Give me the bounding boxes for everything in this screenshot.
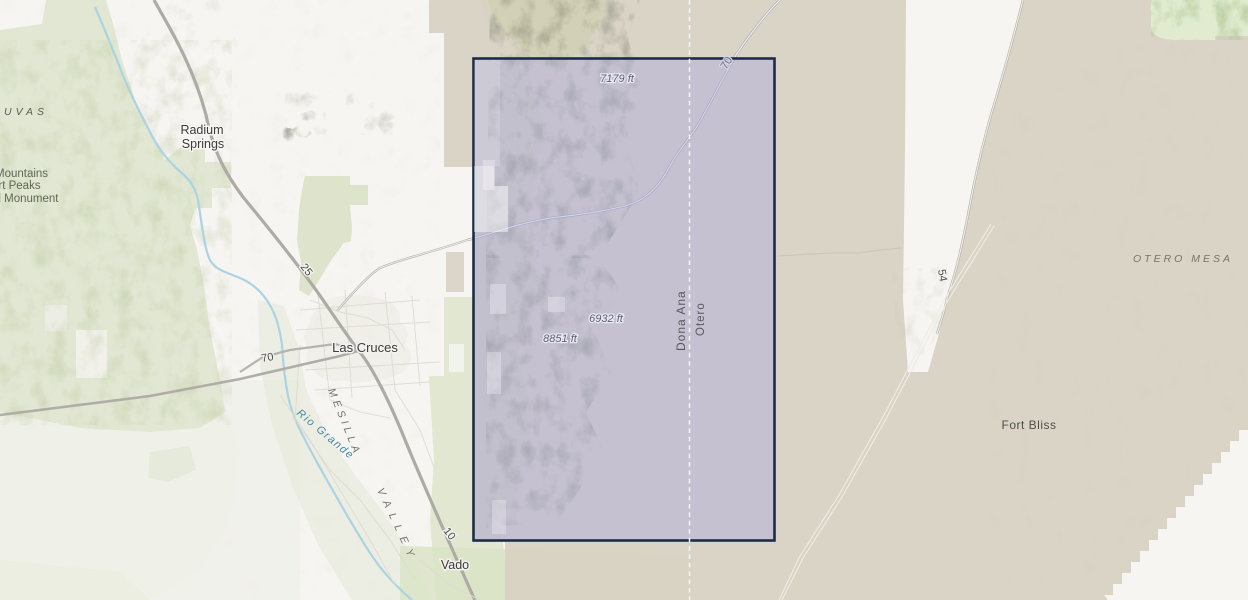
svg-text:7179 ft: 7179 ft [600, 73, 635, 85]
svg-text:OTERO MESA: OTERO MESA [1133, 253, 1233, 265]
svg-text:ert Peaks: ert Peaks [0, 180, 41, 192]
svg-text:UVAS: UVAS [4, 106, 48, 118]
svg-text:Dona Ana: Dona Ana [674, 290, 688, 351]
svg-text:Fort Bliss: Fort Bliss [1001, 418, 1056, 432]
svg-text:Springs: Springs [182, 137, 224, 151]
svg-text:70: 70 [260, 351, 274, 365]
svg-text:8851 ft: 8851 ft [543, 333, 578, 345]
svg-text:al Monument: al Monument [0, 193, 59, 205]
svg-text:Otero: Otero [695, 302, 707, 336]
svg-text:Las Cruces: Las Cruces [332, 340, 398, 355]
svg-text:6932 ft: 6932 ft [589, 313, 624, 325]
svg-text:Radium: Radium [180, 123, 223, 137]
svg-text:Mountains: Mountains [0, 168, 48, 180]
svg-text:54: 54 [935, 268, 949, 282]
svg-text:Vado: Vado [441, 558, 469, 572]
